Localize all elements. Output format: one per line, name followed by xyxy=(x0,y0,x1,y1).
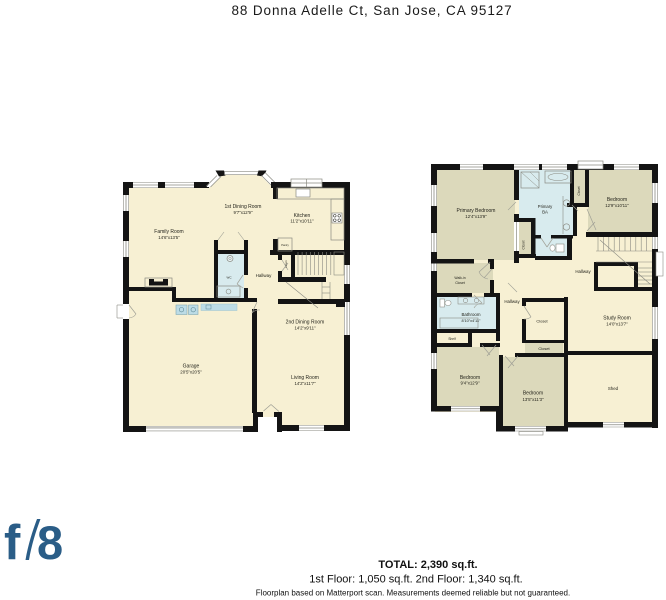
svg-text:14'2"x11'7": 14'2"x11'7" xyxy=(294,381,316,386)
svg-text:14'2"x9'11": 14'2"x9'11" xyxy=(294,326,316,331)
svg-text:Linen: Linen xyxy=(284,260,288,268)
svg-text:Closet: Closet xyxy=(455,281,465,285)
svg-text:Primary: Primary xyxy=(538,204,553,209)
svg-text:Pantry: Pantry xyxy=(281,243,289,247)
svg-text:Hallway: Hallway xyxy=(575,269,591,274)
svg-text:Hallway: Hallway xyxy=(504,299,520,304)
svg-text:8: 8 xyxy=(37,516,63,569)
svg-text:Bedroom: Bedroom xyxy=(523,391,543,397)
svg-text:Closet: Closet xyxy=(538,346,550,351)
svg-text:Walk-in: Walk-in xyxy=(454,276,465,280)
svg-text:Hallway: Hallway xyxy=(256,273,273,278)
svg-text:12'4"x13'9": 12'4"x13'9" xyxy=(465,214,487,219)
svg-text:Shed: Shed xyxy=(608,386,619,391)
svg-text:Closet: Closet xyxy=(536,319,548,324)
svg-text:Shelf: Shelf xyxy=(448,337,455,341)
svg-text:14'0"x13'7": 14'0"x13'7" xyxy=(606,322,628,327)
svg-text:WC: WC xyxy=(227,276,233,280)
svg-text:14'6"x13'5": 14'6"x13'5" xyxy=(158,235,180,240)
svg-text:9'4"x12'9": 9'4"x12'9" xyxy=(461,381,480,386)
svg-text:11'2"x10'11": 11'2"x10'11" xyxy=(290,219,314,224)
svg-text:BA: BA xyxy=(542,210,548,215)
svg-text:13'5"x11'3": 13'5"x11'3" xyxy=(522,397,544,402)
svg-text:Bathroom: Bathroom xyxy=(461,312,480,317)
svg-text:8'10"x4'11": 8'10"x4'11" xyxy=(462,318,482,323)
svg-text:12'9"x10'11": 12'9"x10'11" xyxy=(605,203,629,208)
svg-text:1st Floor: 1,050 sq.ft. 2nd Fl: 1st Floor: 1,050 sq.ft. 2nd Floor: 1,340… xyxy=(309,574,522,586)
svg-text:Closet: Closet xyxy=(577,186,581,195)
svg-text:9'7"x12'9": 9'7"x12'9" xyxy=(234,210,253,215)
svg-text:Floorplan based on Matterport: Floorplan based on Matterport scan. Meas… xyxy=(256,589,570,598)
svg-text:88 Donna Adelle Ct, San Jose,: 88 Donna Adelle Ct, San Jose, CA 95127 xyxy=(231,3,512,18)
svg-text:f: f xyxy=(4,516,21,570)
svg-text:20'5"x20'5": 20'5"x20'5" xyxy=(180,370,202,375)
svg-text:TOTAL: 2,390 sq.ft.: TOTAL: 2,390 sq.ft. xyxy=(378,559,477,571)
svg-text:Closet: Closet xyxy=(522,240,526,249)
